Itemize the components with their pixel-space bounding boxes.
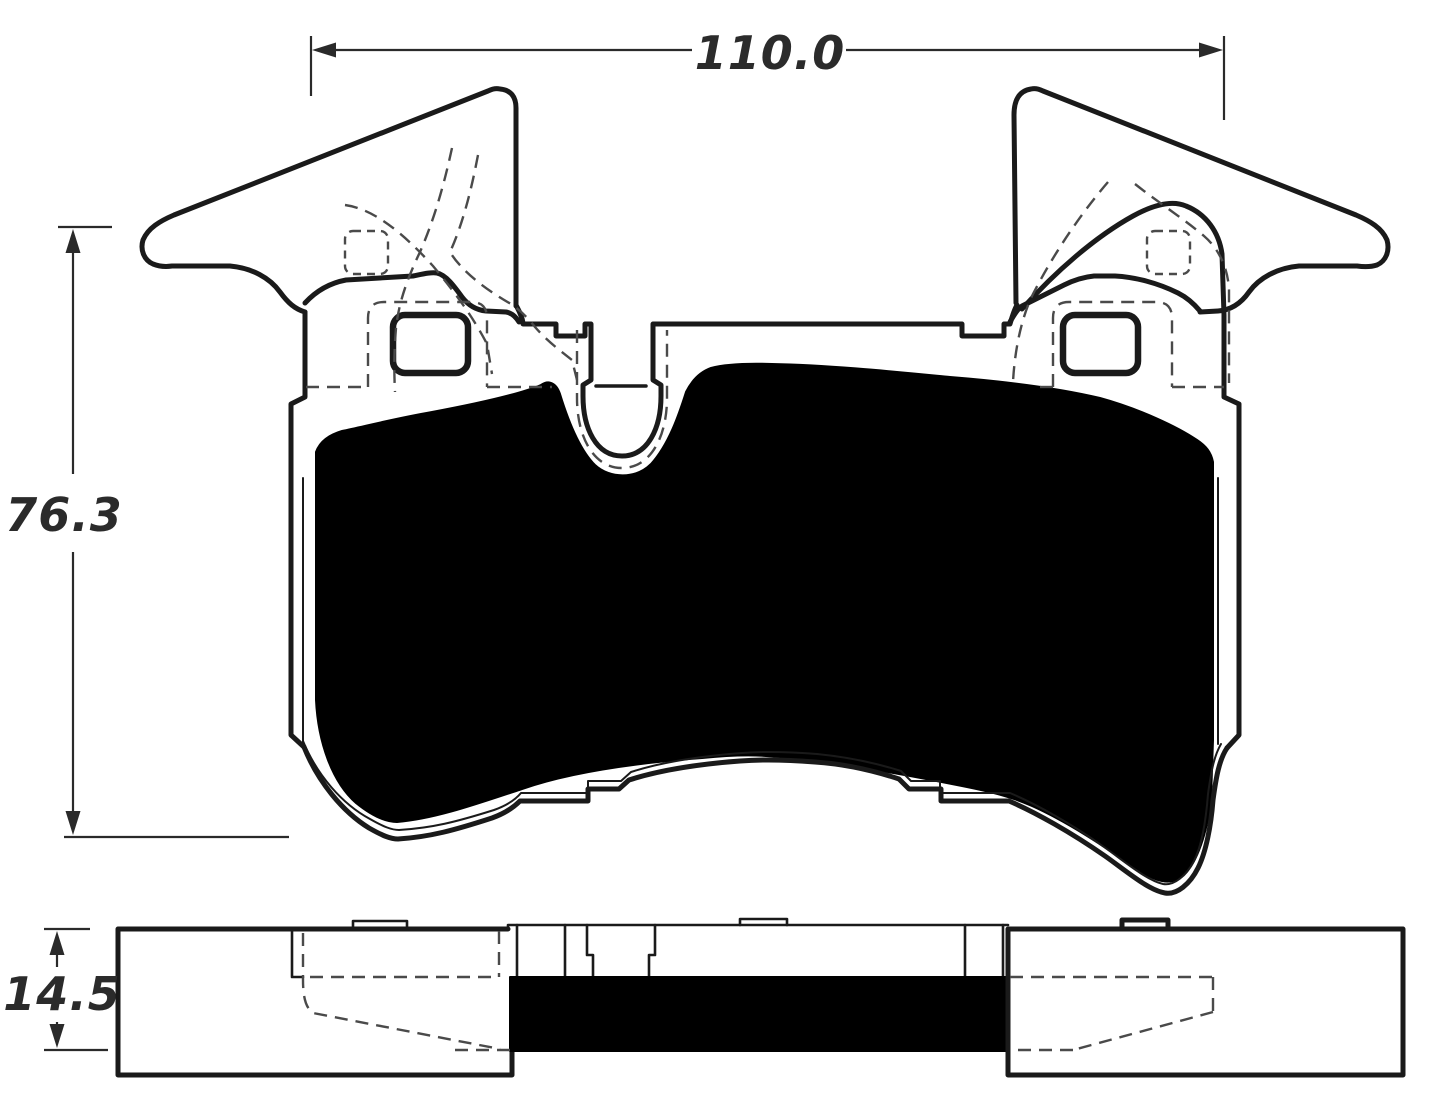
side-plate-step <box>292 929 303 977</box>
side-hidden-right <box>1010 977 1213 1050</box>
side-right-block <box>1008 929 1403 1075</box>
dim-thickness-arrow-up <box>50 931 65 955</box>
front-view <box>142 89 1388 894</box>
abutment-hole-left <box>393 315 468 373</box>
brake-pad-technical-drawing: 110.0 76.3 14.5 <box>0 0 1440 1105</box>
side-friction-bar <box>510 977 1008 1051</box>
dim-height-label: 76.3 <box>5 488 123 542</box>
dim-height-arrow-top <box>66 229 81 253</box>
hidden-square-right-ear <box>1147 231 1190 274</box>
hidden-square-left-ear <box>345 231 388 274</box>
side-slot-step-right <box>649 925 655 977</box>
right-ear <box>1014 89 1388 312</box>
dim-width-arrow-left <box>312 43 336 58</box>
dim-thickness-arrow-down <box>50 1024 65 1048</box>
side-plate-top <box>508 925 1008 929</box>
side-left-block <box>118 929 512 1075</box>
drawing-canvas: 110.0 76.3 14.5 <box>0 0 1440 1105</box>
side-hidden-left <box>303 931 512 1050</box>
side-slot-step-left <box>587 925 593 977</box>
side-view <box>118 919 1403 1075</box>
dim-width-arrow-right <box>1199 43 1223 58</box>
abutment-hole-right <box>1063 315 1138 373</box>
dim-height-arrow-bottom <box>66 811 81 835</box>
dim-thickness-label: 14.5 <box>3 967 121 1021</box>
dim-width-label: 110.0 <box>695 26 846 80</box>
dimension-height: 76.3 <box>5 227 289 837</box>
left-ear <box>142 89 516 312</box>
dimension-thickness: 14.5 <box>3 929 121 1050</box>
friction-material <box>316 364 1213 882</box>
